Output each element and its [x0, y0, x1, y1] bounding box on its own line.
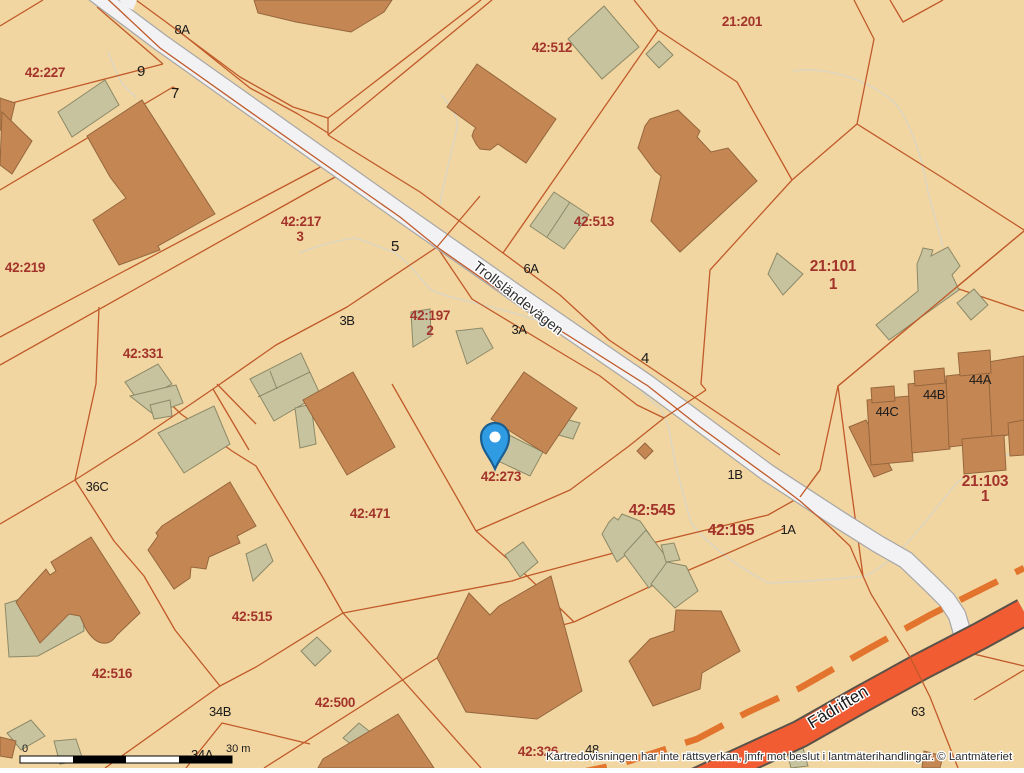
- svg-text:21:201: 21:201: [722, 14, 763, 29]
- svg-text:4: 4: [641, 350, 649, 367]
- svg-text:9: 9: [137, 63, 145, 80]
- svg-text:3A: 3A: [511, 322, 527, 337]
- svg-text:36C: 36C: [86, 479, 109, 494]
- svg-text:3: 3: [296, 229, 304, 244]
- svg-text:21:101: 21:101: [810, 258, 857, 275]
- svg-text:2: 2: [426, 323, 433, 338]
- svg-text:42:273: 42:273: [481, 469, 522, 484]
- svg-text:44B: 44B: [923, 387, 945, 402]
- svg-text:42:516: 42:516: [92, 666, 133, 681]
- svg-text:1A: 1A: [780, 522, 796, 537]
- svg-text:30 m: 30 m: [226, 743, 250, 755]
- svg-text:42:512: 42:512: [532, 40, 572, 55]
- svg-text:7: 7: [171, 85, 179, 102]
- svg-text:Kartredovisningen har inte rät: Kartredovisningen har inte rättsverkan, …: [546, 751, 1013, 763]
- svg-text:42:197: 42:197: [410, 308, 450, 323]
- svg-text:42:195: 42:195: [708, 522, 755, 539]
- svg-text:63: 63: [911, 704, 925, 719]
- svg-text:0: 0: [22, 743, 28, 755]
- svg-text:42:471: 42:471: [350, 506, 391, 521]
- svg-text:42:219: 42:219: [5, 260, 45, 275]
- svg-text:42:217: 42:217: [281, 214, 321, 229]
- svg-text:42:545: 42:545: [629, 502, 676, 519]
- svg-text:34B: 34B: [209, 704, 231, 719]
- svg-text:5: 5: [391, 238, 399, 255]
- svg-text:42:513: 42:513: [574, 214, 615, 229]
- svg-text:44C: 44C: [876, 404, 899, 419]
- svg-text:44A: 44A: [969, 372, 992, 387]
- svg-text:42:227: 42:227: [25, 65, 65, 80]
- svg-text:3B: 3B: [339, 313, 354, 328]
- svg-text:1B: 1B: [727, 467, 742, 482]
- svg-text:1: 1: [829, 276, 838, 293]
- svg-text:8A: 8A: [174, 22, 190, 37]
- svg-text:42:515: 42:515: [232, 609, 273, 624]
- svg-text:42:331: 42:331: [123, 346, 164, 361]
- svg-text:6A: 6A: [523, 261, 539, 276]
- svg-text:1: 1: [981, 488, 990, 505]
- svg-text:42:500: 42:500: [315, 695, 355, 710]
